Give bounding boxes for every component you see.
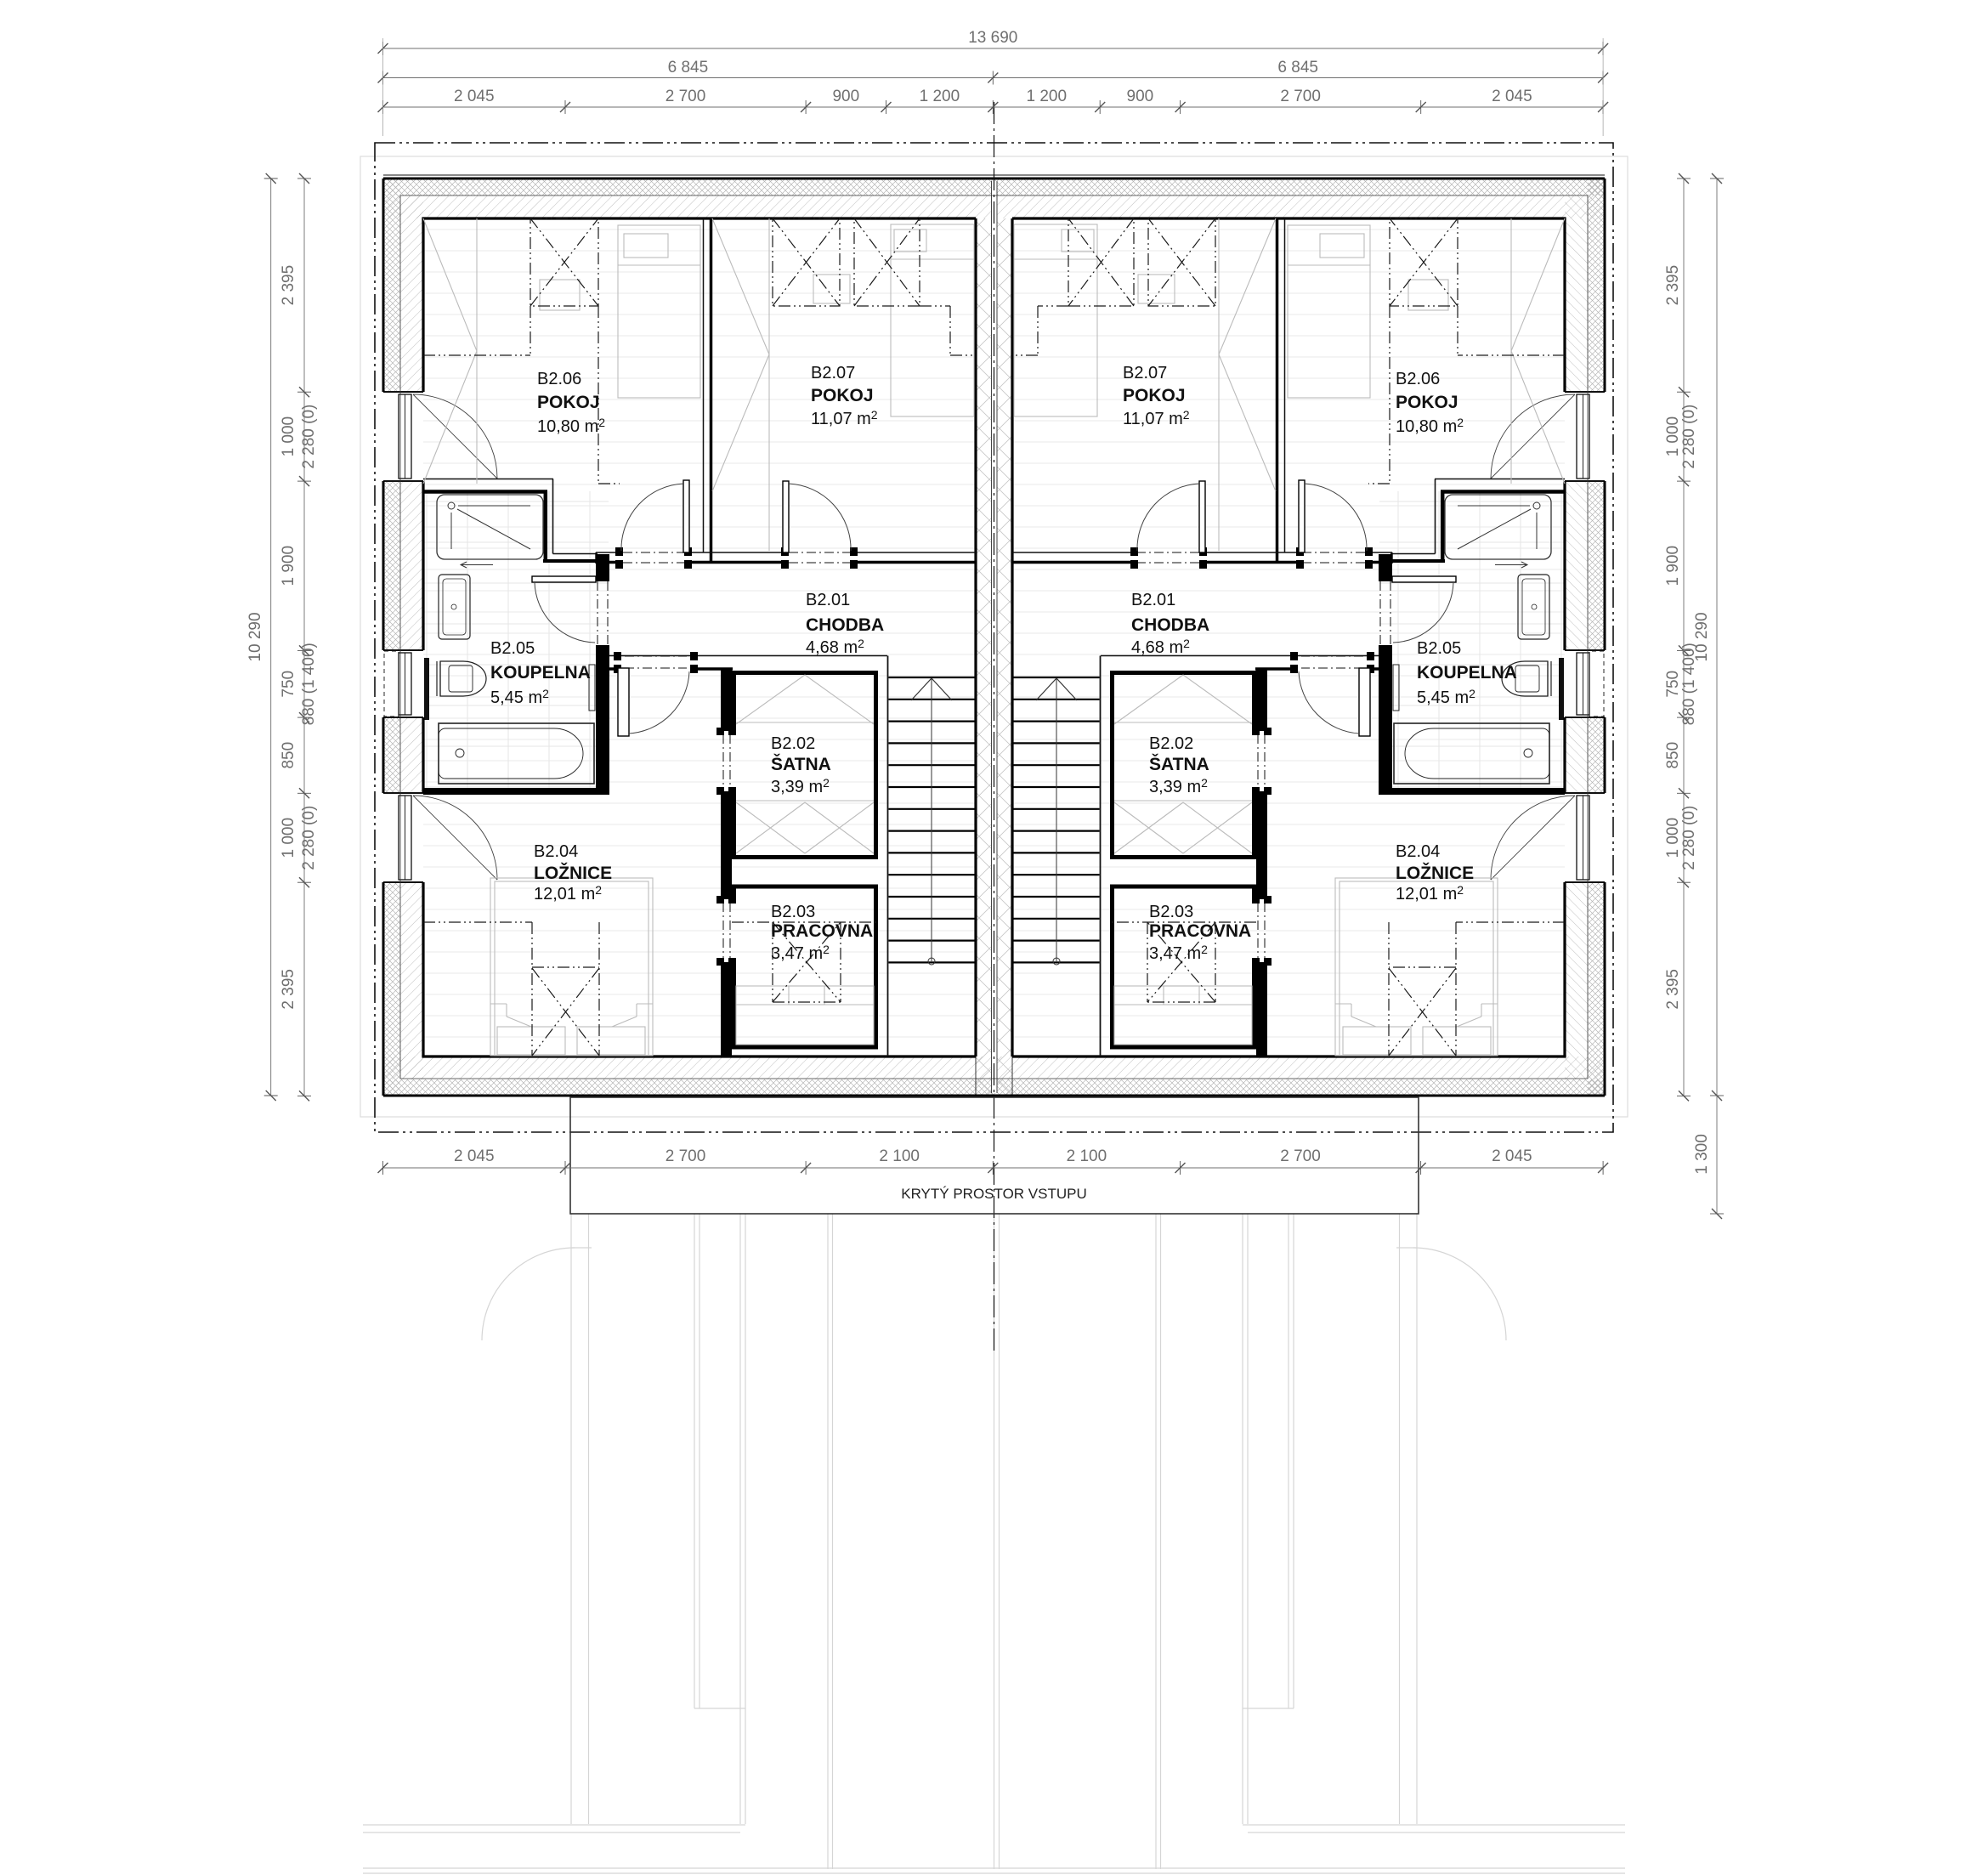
svg-text:B2.04: B2.04 [534,842,578,861]
svg-text:B2.06: B2.06 [1396,370,1440,388]
svg-text:10 290: 10 290 [246,612,264,661]
svg-text:B2.05: B2.05 [1417,639,1461,658]
svg-text:850: 850 [1664,742,1682,769]
svg-text:1 000: 1 000 [280,416,297,457]
svg-text:KOUPELNA: KOUPELNA [490,663,591,683]
svg-text:900: 900 [832,88,859,105]
svg-text:12,01 m2: 12,01 m2 [534,883,602,904]
svg-text:3,39 m2: 3,39 m2 [771,776,830,796]
svg-text:13 690: 13 690 [968,29,1017,47]
svg-text:4,68 m2: 4,68 m2 [806,637,864,657]
svg-text:2 045: 2 045 [1492,1147,1532,1165]
svg-text:LOŽNICE: LOŽNICE [534,863,612,883]
svg-text:POKOJ: POKOJ [537,393,600,412]
svg-text:1 200: 1 200 [920,88,960,105]
svg-text:850: 850 [280,742,297,769]
svg-text:2 100: 2 100 [1067,1147,1107,1165]
svg-text:900: 900 [1127,88,1154,105]
svg-text:750: 750 [280,671,297,698]
svg-text:3,39 m2: 3,39 m2 [1149,776,1208,796]
svg-text:12,01 m2: 12,01 m2 [1396,883,1464,904]
svg-text:2 045: 2 045 [454,88,495,105]
svg-text:B2.01: B2.01 [806,591,850,609]
svg-text:2 395: 2 395 [280,969,297,1010]
svg-text:POKOJ: POKOJ [1396,393,1458,412]
svg-text:2 395: 2 395 [280,265,297,306]
svg-text:B2.06: B2.06 [537,370,581,388]
svg-text:KRYTÝ PROSTOR VSTUPU: KRYTÝ PROSTOR VSTUPU [901,1186,1087,1202]
svg-text:B2.07: B2.07 [1123,364,1167,382]
svg-text:5,45 m2: 5,45 m2 [1417,687,1475,707]
svg-text:ŠATNA: ŠATNA [1149,754,1209,774]
svg-text:B2.01: B2.01 [1131,591,1175,609]
svg-text:1 000: 1 000 [1664,818,1682,858]
svg-text:B2.03: B2.03 [771,903,815,921]
svg-text:B2.04: B2.04 [1396,842,1440,861]
svg-text:1 900: 1 900 [1664,546,1682,586]
svg-text:1 000: 1 000 [280,818,297,858]
svg-text:KOUPELNA: KOUPELNA [1417,663,1517,683]
svg-text:B2.02: B2.02 [771,734,815,753]
svg-text:PRACOVNA: PRACOVNA [771,921,873,941]
svg-text:CHODBA: CHODBA [806,615,884,635]
svg-text:2 045: 2 045 [454,1147,495,1165]
svg-text:2 700: 2 700 [665,88,706,105]
svg-text:B2.07: B2.07 [811,364,855,382]
svg-text:1 300: 1 300 [1693,1134,1711,1175]
svg-text:6 845: 6 845 [1277,59,1318,76]
svg-text:LOŽNICE: LOŽNICE [1396,863,1474,883]
svg-text:10,80 m2: 10,80 m2 [537,416,605,436]
svg-text:2 700: 2 700 [1280,88,1321,105]
svg-text:POKOJ: POKOJ [1123,386,1186,405]
svg-text:3,47 m2: 3,47 m2 [1149,943,1208,963]
svg-text:2 280 (0): 2 280 (0) [300,405,318,469]
svg-text:5,45 m2: 5,45 m2 [490,687,549,707]
svg-text:4,68 m2: 4,68 m2 [1131,637,1190,657]
svg-text:1 900: 1 900 [280,546,297,586]
svg-text:6 845: 6 845 [668,59,709,76]
svg-text:10,80 m2: 10,80 m2 [1396,416,1464,436]
svg-text:11,07 m2: 11,07 m2 [811,408,878,428]
svg-text:2 700: 2 700 [665,1147,706,1165]
svg-text:ŠATNA: ŠATNA [771,754,831,774]
svg-text:CHODBA: CHODBA [1131,615,1209,635]
svg-text:2 280 (0): 2 280 (0) [1680,405,1698,469]
svg-text:2 100: 2 100 [879,1147,920,1165]
svg-text:880 (1 400): 880 (1 400) [1680,643,1698,725]
svg-text:3,47 m2: 3,47 m2 [771,943,830,963]
svg-text:POKOJ: POKOJ [811,386,874,405]
svg-text:2 395: 2 395 [1664,265,1682,306]
svg-text:1 000: 1 000 [1664,416,1682,457]
svg-text:11,07 m2: 11,07 m2 [1123,408,1190,428]
svg-text:B2.02: B2.02 [1149,734,1193,753]
svg-text:B2.03: B2.03 [1149,903,1193,921]
svg-text:1 200: 1 200 [1026,88,1067,105]
svg-text:2 045: 2 045 [1492,88,1532,105]
svg-text:750: 750 [1664,671,1682,698]
svg-text:880 (1 400): 880 (1 400) [300,643,318,725]
svg-text:PRACOVNA: PRACOVNA [1149,921,1251,941]
svg-text:2 280 (0): 2 280 (0) [300,806,318,870]
svg-text:2 280 (0): 2 280 (0) [1680,806,1698,870]
svg-text:2 395: 2 395 [1664,969,1682,1010]
svg-text:2 700: 2 700 [1280,1147,1321,1165]
svg-text:B2.05: B2.05 [490,639,535,658]
